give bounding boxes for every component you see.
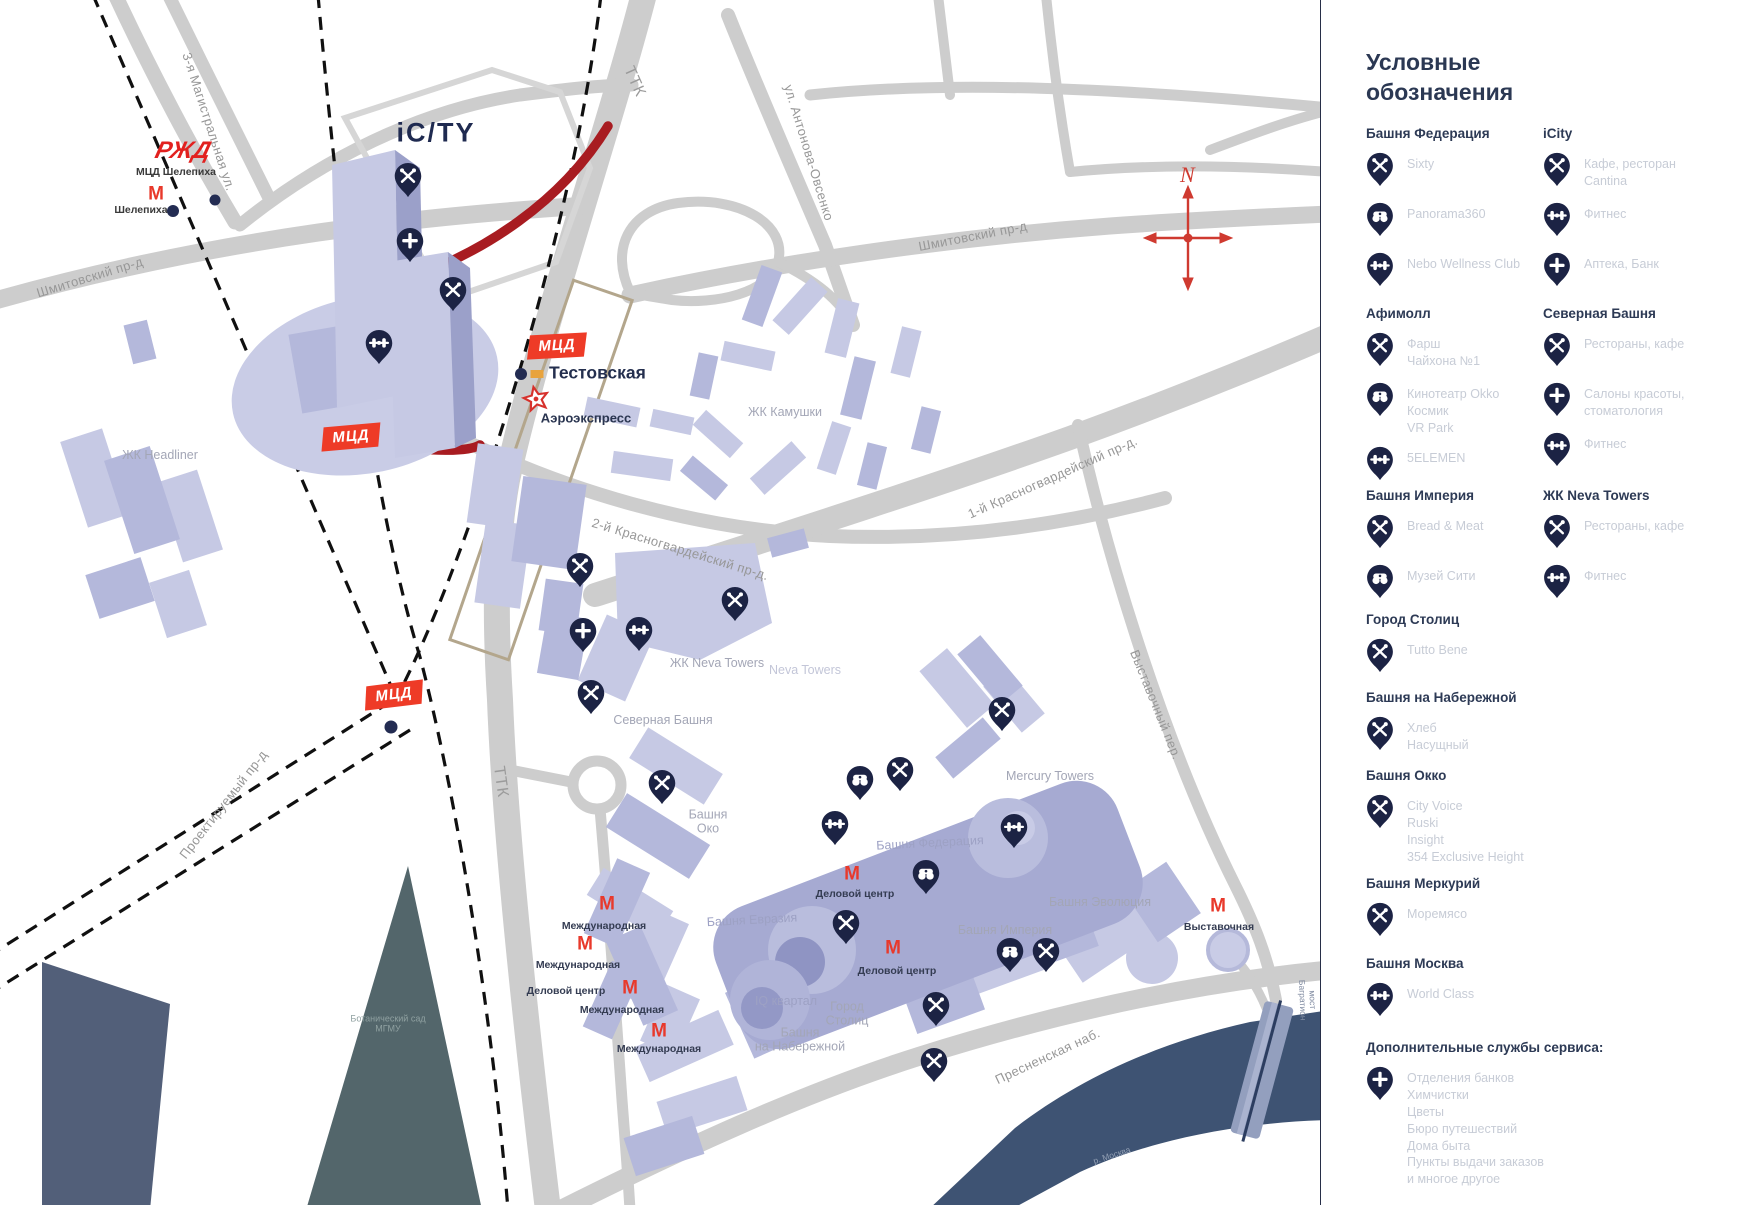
legend-section: Башня ОккоCity Voice Ruski Insight 354 E… — [1366, 768, 1576, 875]
legend-section: Город СтолицTutto Bene — [1366, 612, 1576, 688]
plus-icon — [1543, 382, 1571, 423]
legend-item: Фитнес — [1543, 202, 1752, 243]
fitness-icon — [1543, 432, 1571, 473]
legend-section-title: Башня Москва — [1366, 956, 1576, 971]
fitness-icon — [1366, 446, 1394, 487]
dark-building-silhouette — [42, 962, 170, 1205]
restaurant-icon — [1366, 332, 1394, 373]
vystavochnaya-plaza — [1208, 930, 1248, 970]
legend-section-title: Северная Башня — [1543, 306, 1752, 321]
legend-item-label: Panorama360 — [1407, 202, 1486, 223]
legend-section: Башня МоскваWorld Class — [1366, 956, 1576, 1032]
legend-item: Рестораны, кафе — [1543, 514, 1752, 555]
legend-section-title: Город Столиц — [1366, 612, 1576, 627]
legend-item-label: Аптека, Банк — [1584, 252, 1659, 273]
restaurant-icon — [1366, 638, 1394, 679]
restaurant-icon — [1543, 152, 1571, 193]
map-background: N — [0, 0, 1321, 1205]
legend-item-label: Кафе, ресторан Cantina — [1584, 152, 1676, 190]
legend-item-label: Салоны красоты, стоматология — [1584, 382, 1685, 420]
map-canvas: N 3-я Магистральная ул.Шмитовский пр-дТТ… — [0, 0, 1321, 1205]
legend-item: Рестораны, кафе — [1543, 332, 1752, 373]
legend-item: World Class — [1366, 982, 1576, 1023]
legend-section: ЖК Neva TowersРестораны, кафеФитнес — [1543, 488, 1752, 614]
legend-item-label: Sixty — [1407, 152, 1434, 173]
botanical-garden-park — [306, 866, 482, 1205]
fitness-icon — [1543, 202, 1571, 243]
legend-item-label: Bread & Meat — [1407, 514, 1483, 535]
legend-item-label: 5ELEMEN — [1407, 446, 1465, 467]
legend-section-title: Башня Окко — [1366, 768, 1576, 783]
legend-item: Фитнес — [1543, 432, 1752, 473]
legend-section: Северная БашняРестораны, кафеСалоны крас… — [1543, 306, 1752, 482]
legend-item-label: City Voice Ruski Insight 354 Exclusive H… — [1407, 794, 1524, 866]
legend-item-label: World Class — [1407, 982, 1474, 1003]
legend-item-label: Nebo Wellness Club — [1407, 252, 1520, 273]
legend-item: Салоны красоты, стоматология — [1543, 382, 1752, 423]
legend-item-label: Фарш Чайхона №1 — [1407, 332, 1480, 370]
legend-item: Отделения банков Химчистки Цветы Бюро пу… — [1366, 1066, 1576, 1188]
legend-item-label: Музей Сити — [1407, 564, 1476, 585]
legend-item: Моремясо — [1366, 902, 1576, 943]
fitness-icon — [1543, 564, 1571, 605]
legend-section: iCityКафе, ресторан CantinaФитнесАптека,… — [1543, 126, 1752, 302]
legend-item: Tutto Bene — [1366, 638, 1576, 679]
restaurant-icon — [1543, 514, 1571, 555]
city-map-scheme: N 3-я Магистральная ул.Шмитовский пр-дТТ… — [0, 0, 1752, 1205]
legend-item-label: Моремясо — [1407, 902, 1467, 923]
restaurant-icon — [1543, 332, 1571, 373]
restaurant-icon — [1366, 152, 1394, 193]
legend-item: City Voice Ruski Insight 354 Exclusive H… — [1366, 794, 1576, 866]
legend-item: Хлеб Насущный — [1366, 716, 1576, 757]
legend-item-label: Отделения банков Химчистки Цветы Бюро пу… — [1407, 1066, 1544, 1188]
legend-item-label: Фитнес — [1584, 202, 1626, 223]
fitness-icon — [1366, 252, 1394, 293]
legend-item-label: Кинотеатр Okko Космик VR Park — [1407, 382, 1499, 437]
legend-item: Фитнес — [1543, 564, 1752, 605]
legend-item-label: Хлеб Насущный — [1407, 716, 1469, 754]
plus-icon — [1366, 1066, 1394, 1107]
binoculars-icon — [1366, 382, 1394, 423]
binoculars-icon — [1366, 202, 1394, 243]
legend-item: Аптека, Банк — [1543, 252, 1752, 293]
legend-item-label: Tutto Bene — [1407, 638, 1468, 659]
legend-section: Башня на НабережнойХлеб Насущный — [1366, 690, 1576, 766]
fitness-icon — [1366, 982, 1394, 1023]
legend-section-title: Башня на Набережной — [1366, 690, 1576, 705]
legend-section-title: Башня Меркурий — [1366, 876, 1576, 891]
legend-section: Дополнительные службы сервиса:Отделения … — [1366, 1040, 1576, 1197]
legend-section-title: Дополнительные службы сервиса: — [1366, 1040, 1576, 1055]
legend-section-title: ЖК Neva Towers — [1543, 488, 1752, 503]
restaurant-icon — [1366, 794, 1394, 835]
svg-text:N: N — [1179, 162, 1196, 187]
legend-section-title: iCity — [1543, 126, 1752, 141]
restaurant-icon — [1366, 902, 1394, 943]
legend-item-label: Рестораны, кафе — [1584, 332, 1684, 353]
legend-item: Кафе, ресторан Cantina — [1543, 152, 1752, 193]
restaurant-icon — [1366, 514, 1394, 555]
legend-item-label: Фитнес — [1584, 432, 1626, 453]
plus-icon — [1543, 252, 1571, 293]
legend-title: Условные обозначения — [1366, 48, 1513, 108]
legend-section: Башня МеркурийМоремясо — [1366, 876, 1576, 952]
legend-panel: Условные обозначения Башня ФедерацияSixt… — [1321, 0, 1752, 1205]
legend-item-label: Фитнес — [1584, 564, 1626, 585]
binoculars-icon — [1366, 564, 1394, 605]
restaurant-icon — [1366, 716, 1394, 757]
legend-item-label: Рестораны, кафе — [1584, 514, 1684, 535]
